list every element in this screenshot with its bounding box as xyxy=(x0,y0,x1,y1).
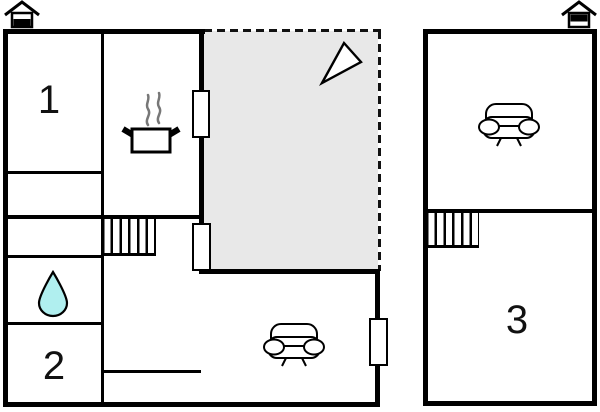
steam-icon xyxy=(158,93,160,123)
room-1-label: 1 xyxy=(27,76,71,124)
wall-segment xyxy=(101,370,201,373)
stairs-ground-floor xyxy=(102,218,156,256)
wall-segment xyxy=(423,401,597,406)
room-3-label: 3 xyxy=(495,296,539,344)
kitchen-pot-icon xyxy=(119,89,183,160)
window xyxy=(192,90,210,138)
wall-segment xyxy=(5,171,103,174)
wall-segment xyxy=(592,29,597,406)
north-arrow-icon xyxy=(316,38,366,93)
steam-icon xyxy=(147,95,149,125)
wall-segment xyxy=(199,269,380,274)
room-2-label: 2 xyxy=(32,342,76,390)
wall-segment xyxy=(5,255,103,258)
water-drop-icon xyxy=(36,270,70,323)
wall-segment xyxy=(3,402,380,407)
window xyxy=(192,223,211,271)
terrace-dashed-border-right xyxy=(378,31,381,271)
entrance-house-icon xyxy=(3,0,41,34)
window xyxy=(369,318,388,366)
terrace-dashed-border-top xyxy=(204,29,381,32)
entrance-house-icon xyxy=(560,0,598,34)
sofa-icon-upper-floor xyxy=(477,100,541,153)
floor-plan-canvas: 1 2 xyxy=(0,0,600,412)
sofa-icon-living-room xyxy=(262,320,326,373)
stairs-upper-floor xyxy=(426,213,479,248)
